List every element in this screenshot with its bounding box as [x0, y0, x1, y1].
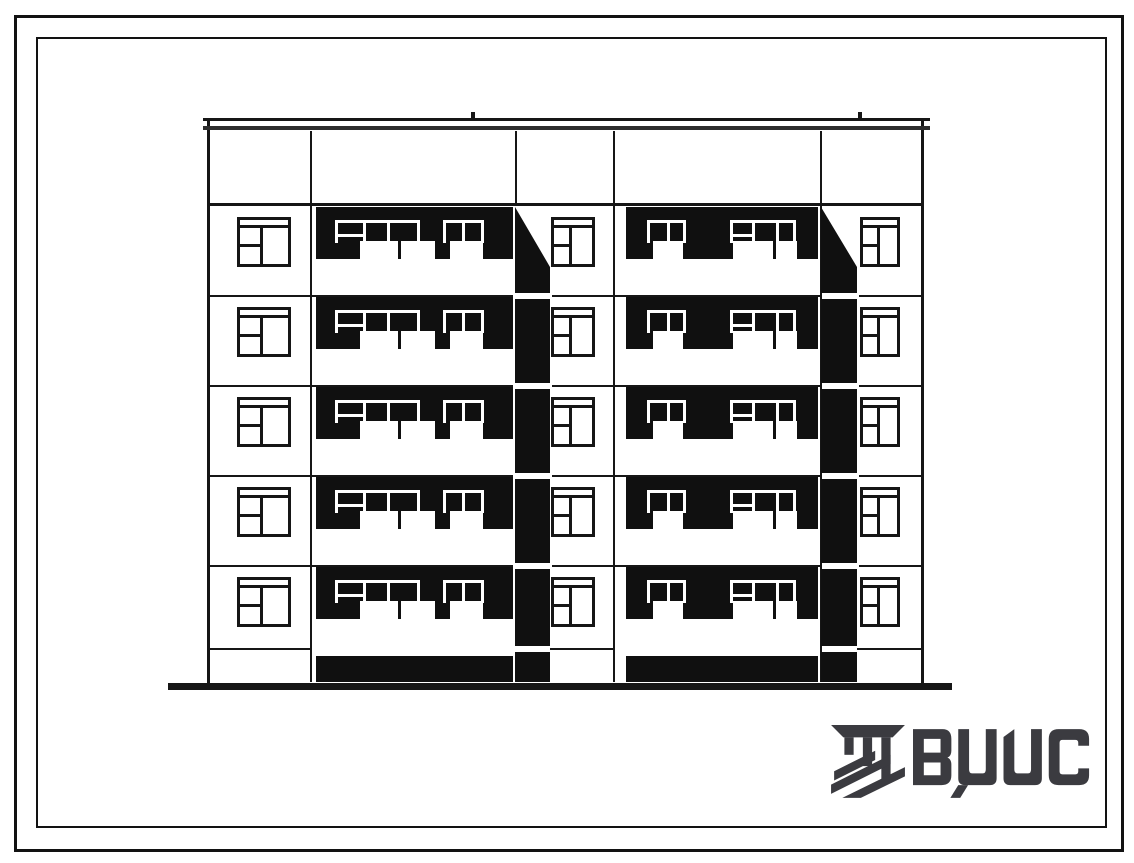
pier-window-transom	[551, 514, 572, 517]
stair-shaft-shadow	[821, 389, 857, 473]
balcony-sill-panel	[401, 241, 435, 259]
attic-panel-joint	[613, 131, 615, 203]
balcony-window-mullion	[752, 220, 755, 243]
balcony-window-mullion	[481, 580, 484, 603]
balcony-sill-panel	[653, 601, 683, 619]
balcony-window-mullion	[462, 580, 465, 603]
stair-shaft-shadow	[515, 569, 550, 646]
balcony-sill-panel	[360, 421, 398, 439]
balcony-window-mullion	[443, 220, 446, 243]
balcony-door-rail	[338, 504, 363, 507]
balcony-window-mullion	[443, 310, 446, 333]
balcony-window-mullion	[417, 400, 420, 423]
balcony-window-mullion	[667, 310, 670, 333]
logo-text-copy: ВЦИС	[829, 722, 830, 723]
balcony-window-mullion	[730, 490, 733, 513]
balcony-window-mullion	[776, 220, 779, 243]
balcony-sill-panel	[653, 511, 683, 529]
stair-shaft-shadow	[515, 389, 550, 473]
building-right-edge	[921, 120, 924, 684]
balcony-window-mullion	[793, 580, 796, 603]
balcony-window-mullion	[481, 490, 484, 513]
balcony-sill-panel	[733, 601, 773, 619]
base-strip	[316, 656, 513, 682]
balcony-window-head	[335, 580, 420, 583]
balcony-window-mullion	[683, 580, 686, 603]
floor-slab-line	[859, 295, 921, 297]
balcony-window-mullion	[462, 490, 465, 513]
balcony-sill-panel	[776, 421, 797, 439]
stair-shaft-shadow	[821, 479, 857, 563]
vcis-logo-text: ВЦИС	[913, 729, 1094, 798]
balcony-window-head	[647, 490, 686, 493]
balcony-window-mullion	[443, 400, 446, 423]
balcony-sill-panel	[653, 421, 683, 439]
pier-window-head	[551, 585, 595, 588]
balcony-sill-panel	[733, 241, 773, 259]
balcony-window-mullion	[752, 580, 755, 603]
balcony-window-mullion	[647, 580, 650, 603]
floor-slab-line	[552, 385, 820, 387]
balcony-window-head	[730, 490, 796, 493]
balcony-window-mullion	[776, 490, 779, 513]
attic-panel-joint	[820, 131, 822, 203]
balcony-window-mullion	[730, 310, 733, 333]
roof-vent-tick	[858, 112, 862, 118]
balcony-door-rail	[338, 324, 363, 327]
plinth-line	[208, 648, 310, 650]
column-hatch-logo-icon	[829, 725, 907, 799]
pier-window-transom	[237, 604, 263, 607]
pier-window-transom	[860, 424, 880, 427]
vcis-logo: ВЦИС ВЦИС	[829, 722, 1099, 802]
floor-slab-line	[859, 385, 921, 387]
balcony-sill-panel	[733, 511, 773, 529]
pier-window-head	[237, 405, 291, 408]
balcony-window-mullion	[667, 490, 670, 513]
stair-shaft-shadow	[821, 299, 857, 383]
balcony-window-mullion	[417, 490, 420, 513]
balcony-window-mullion	[683, 310, 686, 333]
balcony-window-mullion	[443, 580, 446, 603]
balcony-window-mullion	[462, 400, 465, 423]
balcony-window-head	[647, 220, 686, 223]
attic-panel-joint	[515, 131, 517, 203]
balcony-sill-panel	[776, 331, 797, 349]
pier-window-head	[551, 315, 595, 318]
balcony-window-mullion	[776, 580, 779, 603]
balcony-door-rail	[733, 594, 752, 597]
balcony-window-mullion	[730, 400, 733, 423]
balcony-sill-panel	[776, 241, 797, 259]
pier-window-transom	[237, 424, 263, 427]
roof-vent-tick	[471, 112, 475, 118]
balcony-window-mullion	[752, 310, 755, 333]
stair-shaft-shadow	[515, 652, 550, 682]
balcony-window-mullion	[335, 580, 338, 603]
balcony-window-mullion	[683, 220, 686, 243]
stair-shaft-shadow	[515, 299, 550, 383]
balcony-window-mullion	[793, 310, 796, 333]
balcony-sill-panel	[360, 241, 398, 259]
balcony-window-mullion	[647, 310, 650, 333]
stair-shaft-shadow-top	[515, 207, 550, 267]
floor-slab-line	[208, 295, 513, 297]
pier-window-head	[237, 495, 291, 498]
balcony-window-head	[647, 310, 686, 313]
balcony-window-mullion	[335, 310, 338, 333]
floor-slab-line	[552, 295, 820, 297]
stair-shaft-shadow	[821, 267, 857, 293]
balcony-window-mullion	[417, 310, 420, 333]
attic-bottom-line	[208, 203, 922, 206]
attic-panel-joint	[310, 131, 312, 203]
balcony-window-mullion	[363, 400, 366, 423]
balcony-window-mullion	[363, 310, 366, 333]
pier-window-transom	[860, 604, 880, 607]
balcony-sill-panel	[360, 601, 398, 619]
balcony-sill-panel	[776, 511, 797, 529]
balcony-sill-panel	[733, 331, 773, 349]
pier-window-transom	[237, 334, 263, 337]
pier-window-head	[551, 225, 595, 228]
balcony-window-mullion	[667, 400, 670, 423]
balcony-window-head	[647, 400, 686, 403]
stair-shaft-shadow	[821, 652, 857, 682]
balcony-window-head	[335, 220, 420, 223]
balcony-sill-panel	[360, 511, 398, 529]
balcony-sill-panel	[653, 331, 683, 349]
balcony-sill-panel	[401, 421, 435, 439]
balcony-window-mullion	[462, 310, 465, 333]
balcony-window-mullion	[647, 400, 650, 423]
balcony-window-mullion	[793, 400, 796, 423]
balcony-sill-panel	[450, 601, 483, 619]
balcony-door-rail	[733, 414, 752, 417]
balcony-door-rail	[338, 594, 363, 597]
balcony-window-mullion	[793, 220, 796, 243]
balcony-door-rail	[338, 414, 363, 417]
balcony-window-mullion	[335, 400, 338, 423]
pier-window-head	[551, 495, 595, 498]
balcony-window-head	[730, 310, 796, 313]
balcony-door-rail	[733, 504, 752, 507]
balcony-window-mullion	[683, 400, 686, 423]
balcony-window-mullion	[481, 400, 484, 423]
balcony-window-mullion	[387, 490, 390, 513]
base-strip	[626, 656, 818, 682]
balcony-window-mullion	[752, 490, 755, 513]
balcony-window-mullion	[387, 400, 390, 423]
balcony-window-head	[335, 400, 420, 403]
balcony-sill-panel	[401, 511, 435, 529]
balcony-window-mullion	[776, 400, 779, 423]
balcony-window-mullion	[417, 220, 420, 243]
balcony-window-mullion	[667, 220, 670, 243]
stair-shaft-shadow	[515, 267, 550, 293]
stair-shaft-shadow-top	[821, 207, 857, 267]
pier-window-transom	[237, 514, 263, 517]
floor-slab-line	[208, 385, 513, 387]
balcony-window-mullion	[776, 310, 779, 333]
balcony-sill-panel	[450, 421, 483, 439]
balcony-window-mullion	[363, 580, 366, 603]
balcony-window-head	[335, 310, 420, 313]
plinth-line	[857, 648, 921, 650]
pier-window-head	[237, 315, 291, 318]
floor-slab-line	[552, 475, 820, 477]
building-left-edge	[207, 120, 210, 684]
balcony-sill-panel	[653, 241, 683, 259]
balcony-window-mullion	[363, 490, 366, 513]
pier-window-transom	[237, 244, 263, 247]
balcony-window-mullion	[417, 580, 420, 603]
balcony-sill-panel	[450, 511, 483, 529]
balcony-door-rail	[733, 234, 752, 237]
balcony-window-mullion	[793, 490, 796, 513]
ground-line	[168, 683, 952, 690]
balcony-sill-panel	[776, 601, 797, 619]
zone-division-line	[613, 203, 615, 682]
balcony-window-mullion	[647, 220, 650, 243]
stair-shaft-shadow	[821, 569, 857, 646]
balcony-sill-panel	[733, 421, 773, 439]
balcony-window-mullion	[481, 220, 484, 243]
floor-slab-line	[859, 565, 921, 567]
balcony-door-rail	[733, 324, 752, 327]
pier-window-head	[551, 405, 595, 408]
balcony-window-mullion	[387, 310, 390, 333]
floor-slab-line	[552, 565, 820, 567]
floor-slab-line	[208, 565, 513, 567]
balcony-sill-panel	[401, 601, 435, 619]
pier-window-transom	[551, 334, 572, 337]
balcony-window-mullion	[730, 220, 733, 243]
balcony-window-mullion	[730, 580, 733, 603]
balcony-sill-panel	[360, 331, 398, 349]
pier-window-transom	[551, 604, 572, 607]
balcony-window-mullion	[683, 490, 686, 513]
balcony-window-mullion	[387, 580, 390, 603]
pier-window-head	[237, 225, 291, 228]
roof-parapet-line	[203, 118, 930, 121]
balcony-window-mullion	[363, 220, 366, 243]
zone-division-line	[310, 203, 312, 682]
balcony-window-head	[647, 580, 686, 583]
scanned-page: scanned architectural elevation drawing,…	[0, 0, 1134, 863]
pier-window-transom	[860, 244, 880, 247]
balcony-sill-panel	[450, 331, 483, 349]
pier-window-transom	[551, 424, 572, 427]
pier-window-transom	[860, 334, 880, 337]
balcony-window-mullion	[667, 580, 670, 603]
balcony-window-mullion	[335, 220, 338, 243]
balcony-sill-panel	[401, 331, 435, 349]
balcony-window-head	[730, 400, 796, 403]
floor-slab-line	[208, 475, 513, 477]
roof-parapet-band	[203, 126, 930, 130]
pier-window-transom	[860, 514, 880, 517]
balcony-window-mullion	[387, 220, 390, 243]
plinth-line	[550, 648, 613, 650]
pier-window-head	[237, 585, 291, 588]
balcony-window-mullion	[647, 490, 650, 513]
balcony-window-mullion	[481, 310, 484, 333]
balcony-window-mullion	[752, 400, 755, 423]
balcony-window-mullion	[462, 220, 465, 243]
balcony-window-head	[335, 490, 420, 493]
stair-shaft-shadow	[515, 479, 550, 563]
balcony-window-mullion	[443, 490, 446, 513]
floor-slab-line	[859, 475, 921, 477]
balcony-window-head	[730, 220, 796, 223]
balcony-window-mullion	[335, 490, 338, 513]
pier-window-transom	[551, 244, 572, 247]
balcony-sill-panel	[450, 241, 483, 259]
balcony-door-rail	[338, 234, 363, 237]
balcony-window-head	[730, 580, 796, 583]
